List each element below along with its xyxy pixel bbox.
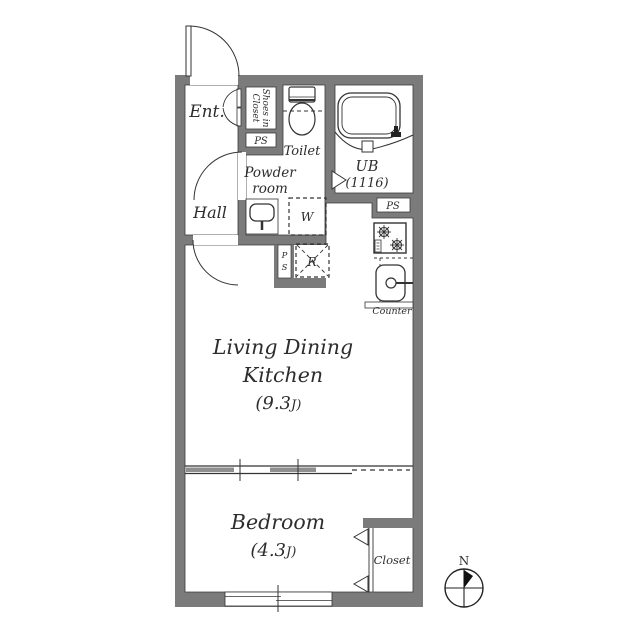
wall-closet-top [363, 518, 423, 528]
label-ps-vertical-p: P [281, 251, 288, 261]
stove-icon [374, 223, 406, 253]
label-refrigerator: R [306, 254, 316, 269]
label-ldk-line2: Kitchen [242, 363, 323, 387]
bath-drain-icon [362, 141, 373, 152]
label-unit-bath-line1: UB [356, 159, 379, 175]
entrance-door-icon [186, 26, 239, 76]
label-washer: W [301, 209, 315, 224]
label-toilet: Toilet [284, 144, 321, 159]
label-shoes-closet-line1: Shoes in [260, 89, 270, 128]
label-hall: Hall [192, 203, 227, 222]
label-closet: Closet [374, 553, 411, 567]
washbasin-icon [246, 199, 278, 234]
box-ps-vertical [278, 245, 291, 278]
label-ps-vertical-s: S [282, 263, 288, 273]
label-counter: Counter [372, 306, 413, 317]
opening-entrance [190, 75, 238, 85]
label-ps-kitchen: PS [385, 201, 400, 212]
opening-ldk-door [193, 235, 238, 245]
compass-icon [445, 569, 483, 607]
label-ldk-area: (9.3 [255, 393, 291, 414]
floorplan-page: Ent. Hall Shoes in Closet PS Toilet Powd… [0, 0, 640, 640]
label-bedroom: Bedroom [230, 510, 325, 534]
label-bedroom-area: (4.3 [250, 540, 286, 561]
label-powder-line1: Powder [243, 165, 297, 181]
label-compass-north: N [459, 554, 470, 568]
label-ldk-line1: Living Dining [212, 335, 353, 359]
label-entrance: Ent. [188, 102, 225, 122]
floor-plan-svg: Ent. Hall Shoes in Closet PS Toilet Powd… [0, 0, 640, 640]
label-ps-top: PS [253, 136, 268, 147]
label-powder-line2: room [252, 181, 288, 197]
label-shoes-closet-line2: Closet [250, 94, 260, 123]
label-unit-bath-line2: (1116) [345, 176, 388, 191]
bathtub-icon [338, 93, 401, 138]
